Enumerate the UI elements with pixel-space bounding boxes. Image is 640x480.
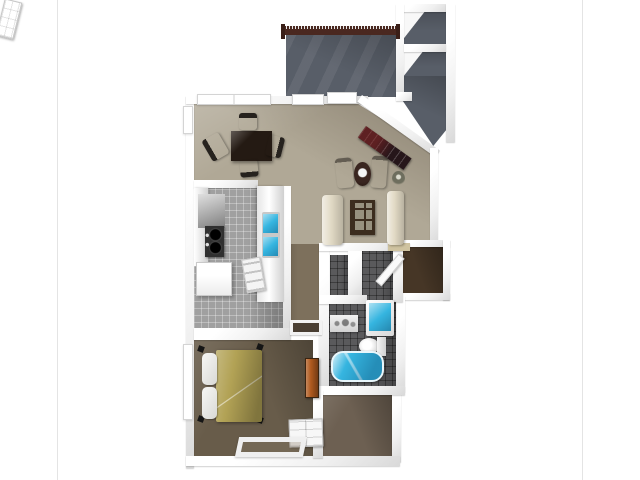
- kitchen-sink: [262, 212, 280, 258]
- sofa-right: [387, 191, 404, 245]
- floorplan-photo: [0, 0, 640, 480]
- wall-storage-divider: [404, 44, 446, 52]
- railing-post-right: [396, 24, 400, 39]
- refrigerator: [196, 262, 232, 296]
- floor-mat: [235, 437, 307, 457]
- room-walkin-closet: [323, 395, 392, 457]
- bathtub: [331, 351, 384, 382]
- room-patio-storage-1: [404, 12, 446, 44]
- coffee-table: [350, 200, 375, 235]
- sofa-left: [322, 195, 343, 245]
- bed-comforter: [216, 350, 262, 422]
- wall-kitchen-bottom: [194, 328, 291, 340]
- room-patio-storage-2: [404, 52, 446, 76]
- wall-patio-step: [396, 92, 412, 101]
- bedroom-doorway-threshold: [290, 320, 322, 335]
- wall-laundry-bottom: [319, 295, 367, 304]
- wall-laundry-mid: [348, 251, 362, 297]
- room-patio: [286, 33, 398, 97]
- bed-post: [197, 345, 205, 353]
- wall-bottom: [186, 456, 400, 466]
- window-dining-left: [183, 106, 193, 134]
- wall-storage-left: [396, 4, 404, 98]
- tall-dresser: [305, 358, 319, 398]
- bed-pillow: [202, 387, 217, 419]
- balcony-railing: [283, 26, 399, 35]
- wall-entry-bottom: [398, 293, 450, 300]
- potted-plant: [392, 171, 405, 186]
- bed-pillow: [202, 353, 217, 385]
- wall-bath-left: [319, 243, 329, 392]
- wall-bath-bottom: [319, 386, 405, 395]
- bed: [198, 344, 264, 424]
- wall-dining-kitchen: [194, 180, 258, 188]
- stove: [205, 226, 224, 257]
- railing-post-left: [281, 24, 285, 39]
- room-laundry-closet: [330, 255, 348, 297]
- sink-basin: [263, 214, 278, 233]
- dining-chair-south: [239, 159, 258, 178]
- window-bedroom-left: [183, 344, 193, 420]
- wall-bath-right: [396, 296, 405, 392]
- patio-door: [327, 92, 357, 104]
- dining-chair-north: [239, 113, 257, 130]
- accent-chair-left: [334, 157, 354, 189]
- wall-storage-top: [398, 4, 448, 12]
- wall-storage-right: [446, 4, 455, 142]
- kitchen-wall-cabinet: [198, 194, 225, 228]
- vanity-sink-top: [369, 303, 391, 331]
- wall-kitchen-hall: [283, 186, 291, 331]
- wall-closet-right: [392, 390, 401, 462]
- accent-chair-right: [370, 155, 388, 188]
- wall-entry-right: [443, 240, 450, 300]
- room-entry: [403, 247, 443, 293]
- front-door: [0, 0, 22, 40]
- bathroom-counter: [330, 315, 358, 332]
- wall-right-upper: [430, 148, 438, 246]
- bathroom-vanity: [366, 300, 394, 336]
- sink-basin: [263, 237, 278, 256]
- window-living-top: [197, 94, 271, 105]
- wall-laundry-right: [393, 243, 403, 302]
- lamp-table: [354, 162, 371, 186]
- railing-balusters: [283, 26, 399, 29]
- window-living-top-2: [292, 94, 324, 105]
